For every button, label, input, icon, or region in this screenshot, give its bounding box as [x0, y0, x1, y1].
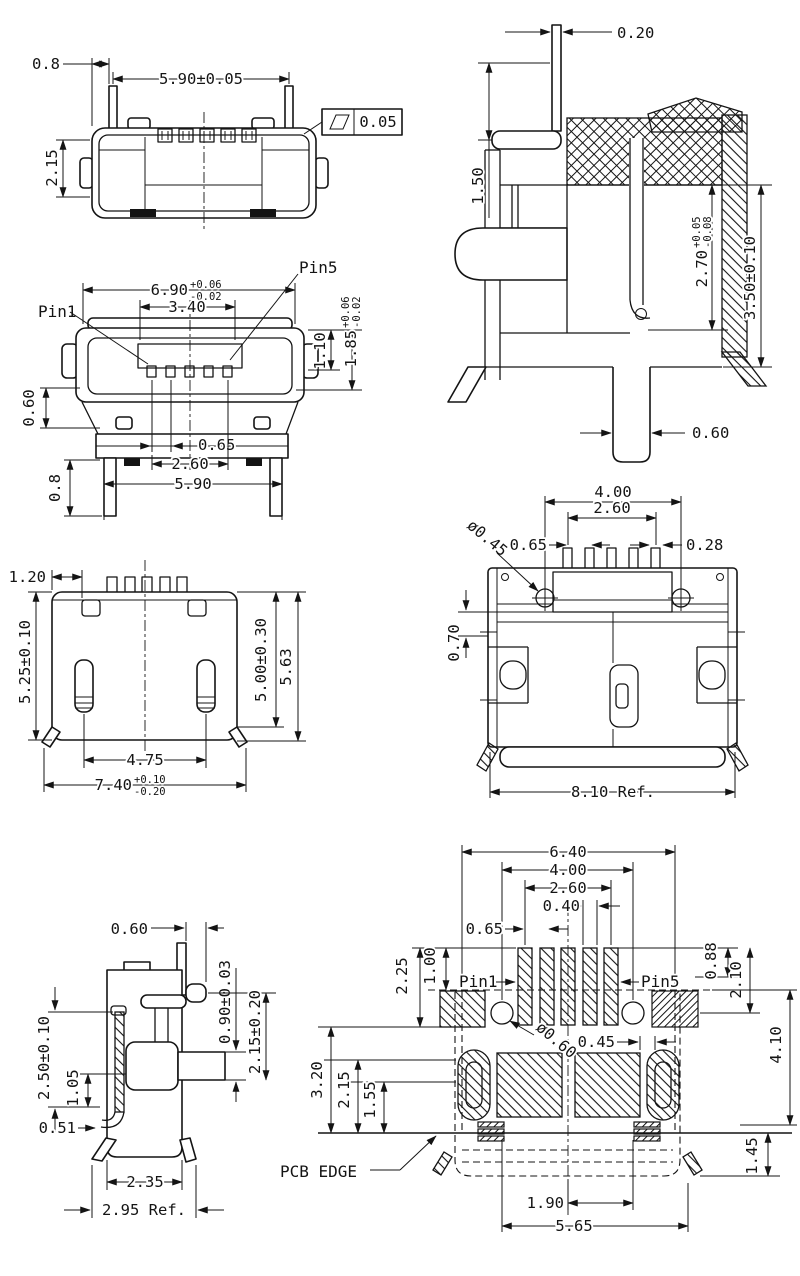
bottom-contact-left: [75, 660, 93, 712]
pcb-comb-right: [634, 1122, 660, 1141]
svg-text:6.90: 6.90: [151, 281, 188, 299]
dim-top-depth: 2.15: [43, 149, 61, 186]
dim-side-pinoff: 0.60: [111, 920, 148, 938]
dim-top-width: 5.90±0.05: [159, 70, 243, 88]
flatness-frame: 0.05: [304, 109, 402, 135]
svg-text:1.05: 1.05: [64, 1069, 82, 1106]
dim-front-shellh: 1.85 +0.06 -0.02: [340, 296, 363, 367]
section-pin-top: [552, 25, 561, 131]
view-top: 0.8 5.90±0.05 2.15 0.05: [32, 55, 402, 232]
top-pin-right: [285, 86, 293, 130]
pcb-hole-right: [622, 1002, 644, 1024]
svg-text:2.50±0.10: 2.50±0.10: [35, 1016, 53, 1100]
svg-text:5.00±0.30: 5.00±0.30: [252, 618, 270, 702]
view-rear: 4.00 2.60 0.65 0.28 ø0.45 0.70 8.10 Ref.: [445, 483, 748, 801]
side-blade: [115, 1012, 124, 1112]
svg-text:-0.20: -0.20: [134, 786, 166, 798]
dim-front-tongue: 3.40: [168, 298, 205, 316]
view-bottom: 1.20 5.25±0.10 5.00±0.30 5.63 4.75 7.40 …: [9, 560, 306, 798]
dim-bottom-span: 4.75: [126, 751, 163, 769]
label-pcb-edge: PCB EDGE: [280, 1162, 357, 1181]
dim-pcb-padspan: 2.60: [549, 879, 586, 897]
dim-section-pinb: 0.60: [692, 424, 729, 442]
pcb-signal-pads: [518, 948, 618, 1025]
dim-front-wing: 0.60: [20, 389, 38, 426]
section-pin-bottom: [613, 367, 650, 462]
pcb-comb-left: [478, 1122, 504, 1141]
dim-section-pin: 0.20: [617, 24, 654, 42]
dim-rear-pins: 2.60: [593, 499, 630, 517]
dim-bottom-hr: 5.00±0.30: [252, 618, 270, 702]
dim-front-span: 2.60: [171, 455, 208, 473]
svg-text:1.45: 1.45: [743, 1137, 761, 1174]
pcb-hole-left: [491, 1002, 513, 1024]
svg-text:2.15: 2.15: [335, 1071, 353, 1108]
dim-flatness: 0.05: [359, 113, 396, 131]
drawing-page: 0.8 5.90±0.05 2.15 0.05 0.20 1.50: [0, 0, 800, 1276]
svg-text:3.50±0.10: 3.50±0.10: [741, 236, 759, 320]
dim-front-opening: 1.10: [311, 332, 329, 369]
svg-text:5.63: 5.63: [277, 648, 295, 685]
svg-text:0.90±0.03: 0.90±0.03: [216, 960, 234, 1044]
svg-text:2.15: 2.15: [43, 149, 61, 186]
svg-text:1.85: 1.85: [342, 330, 360, 367]
side-nub: [186, 984, 206, 1002]
section-insulator: [567, 118, 722, 185]
dim-pcb-cola: 2.25: [393, 957, 411, 994]
svg-text:2.70: 2.70: [693, 250, 711, 287]
dim-top-offset: 0.8: [32, 55, 60, 73]
dim-section-shell: 3.50±0.10: [741, 236, 759, 320]
dim-rear-overall: 8.10 Ref.: [571, 783, 655, 801]
front-leg-right: [270, 458, 282, 516]
dim-pcb-shield: 5.65: [555, 1217, 592, 1235]
svg-text:+0.06: +0.06: [190, 279, 222, 291]
dim-side-shellh: 2.50±0.10: [35, 1016, 53, 1100]
dim-pcb-holespan: 4.00: [549, 861, 586, 879]
dim-pcb-d1: 3.20: [308, 1061, 326, 1098]
dim-bottom-hl: 5.25±0.10: [16, 620, 34, 704]
view-pcb: 6.40 4.00 2.60 0.40 0.65 2.25 1.00 Pin1 …: [280, 843, 797, 1235]
svg-text:5.25±0.10: 5.25±0.10: [16, 620, 34, 704]
svg-text:-0.08: -0.08: [702, 216, 714, 248]
dim-side-stemh: 0.90±0.03: [216, 960, 234, 1044]
label-pin5: Pin5: [299, 258, 338, 277]
dim-pcb-d2: 2.15: [335, 1071, 353, 1108]
dim-pcb-gap: 0.45: [578, 1033, 615, 1051]
dim-front-legspan: 5.90: [174, 475, 211, 493]
label-pcb-pin1: Pin1: [459, 972, 498, 991]
top-pin-left: [109, 86, 117, 130]
side-plunger: [126, 1042, 178, 1090]
svg-text:+0.10: +0.10: [134, 774, 166, 786]
dim-section-inner: 2.70 +0.05 -0.08: [691, 216, 714, 287]
dim-front-pitch: 0.65: [198, 436, 235, 454]
dim-side-overall: 2.95 Ref.: [102, 1201, 186, 1219]
svg-text:0.60: 0.60: [20, 389, 38, 426]
side-stem: [178, 1052, 225, 1080]
dim-pcb-colb: 1.00: [421, 947, 439, 984]
dim-pcb-edgeoff: 1.45: [743, 1137, 761, 1174]
drawing-canvas: 0.8 5.90±0.05 2.15 0.05 0.20 1.50: [0, 0, 800, 1276]
pcb-mount-pad-left: [440, 991, 485, 1027]
dim-side-stempos: 2.15±0.20: [246, 990, 264, 1074]
bottom-contact-right: [197, 660, 215, 712]
svg-text:1.55: 1.55: [361, 1081, 379, 1118]
dim-bottom-ho: 5.63: [277, 648, 295, 685]
svg-text:-0.02: -0.02: [351, 296, 363, 328]
svg-text:2.10: 2.10: [727, 961, 745, 998]
dim-rear-pitch: 0.65: [510, 536, 547, 554]
dim-pcb-depth: 4.10: [767, 1026, 785, 1063]
svg-text:1.00: 1.00: [421, 947, 439, 984]
svg-text:2.15±0.20: 2.15±0.20: [246, 990, 264, 1074]
svg-text:1.50: 1.50: [469, 167, 487, 204]
view-side: 0.60 0.90±0.03 2.15±0.20 2.50±0.10 1.05 …: [35, 920, 276, 1219]
dim-rear-holedia: ø0.45: [464, 516, 511, 560]
dim-side-curl: 0.51: [39, 1119, 76, 1137]
section-tongue: [455, 228, 567, 280]
svg-text:1.10: 1.10: [311, 332, 329, 369]
dim-bottom-edge: 1.20: [9, 568, 46, 586]
svg-text:7.40: 7.40: [95, 776, 132, 794]
svg-text:4.10: 4.10: [767, 1026, 785, 1063]
dim-pcb-slot: 1.90: [527, 1194, 564, 1212]
view-front: 6.90 +0.06 -0.02 3.40 Pin1 Pin5 1.10 1.8…: [20, 258, 363, 520]
label-pin1: Pin1: [38, 302, 77, 321]
pcb-mount-pad-right: [652, 991, 698, 1027]
dim-front-leg: 0.8: [46, 474, 64, 502]
dim-rear-seat: 0.70: [445, 624, 463, 661]
pcb-shield-pad-left: [497, 1053, 562, 1117]
label-pcb-pin5: Pin5: [641, 972, 680, 991]
view-section: 0.20 1.50 2.70 +0.05 -0.08 3.50±0.10 0.6…: [448, 24, 772, 462]
dim-pcb-padw: 0.40: [543, 897, 580, 915]
dim-side-innerh: 1.05: [64, 1069, 82, 1106]
svg-text:0.88: 0.88: [702, 942, 720, 979]
dim-bottom-width: 7.40 +0.10 -0.20: [95, 774, 166, 798]
dim-pcb-d3: 1.55: [361, 1081, 379, 1118]
dim-pcb-rowb: 2.10: [727, 961, 745, 998]
svg-text:0.8: 0.8: [46, 474, 64, 502]
bottom-tabs: [107, 577, 187, 593]
dim-pcb-rowa: 0.88: [702, 942, 720, 979]
svg-text:3.20: 3.20: [308, 1061, 326, 1098]
dim-pcb-pitch: 0.65: [466, 920, 503, 938]
svg-text:2.25: 2.25: [393, 957, 411, 994]
svg-text:ø0.45: ø0.45: [464, 516, 511, 560]
dim-side-body: 2.35: [126, 1173, 163, 1191]
front-leg-left: [104, 458, 116, 516]
dim-section-lead: 1.50: [469, 167, 487, 204]
dim-rear-pinw: 0.28: [686, 536, 723, 554]
pcb-shield-pad-right: [575, 1053, 640, 1117]
dim-pcb-outer: 6.40: [549, 843, 586, 861]
svg-text:0.70: 0.70: [445, 624, 463, 661]
